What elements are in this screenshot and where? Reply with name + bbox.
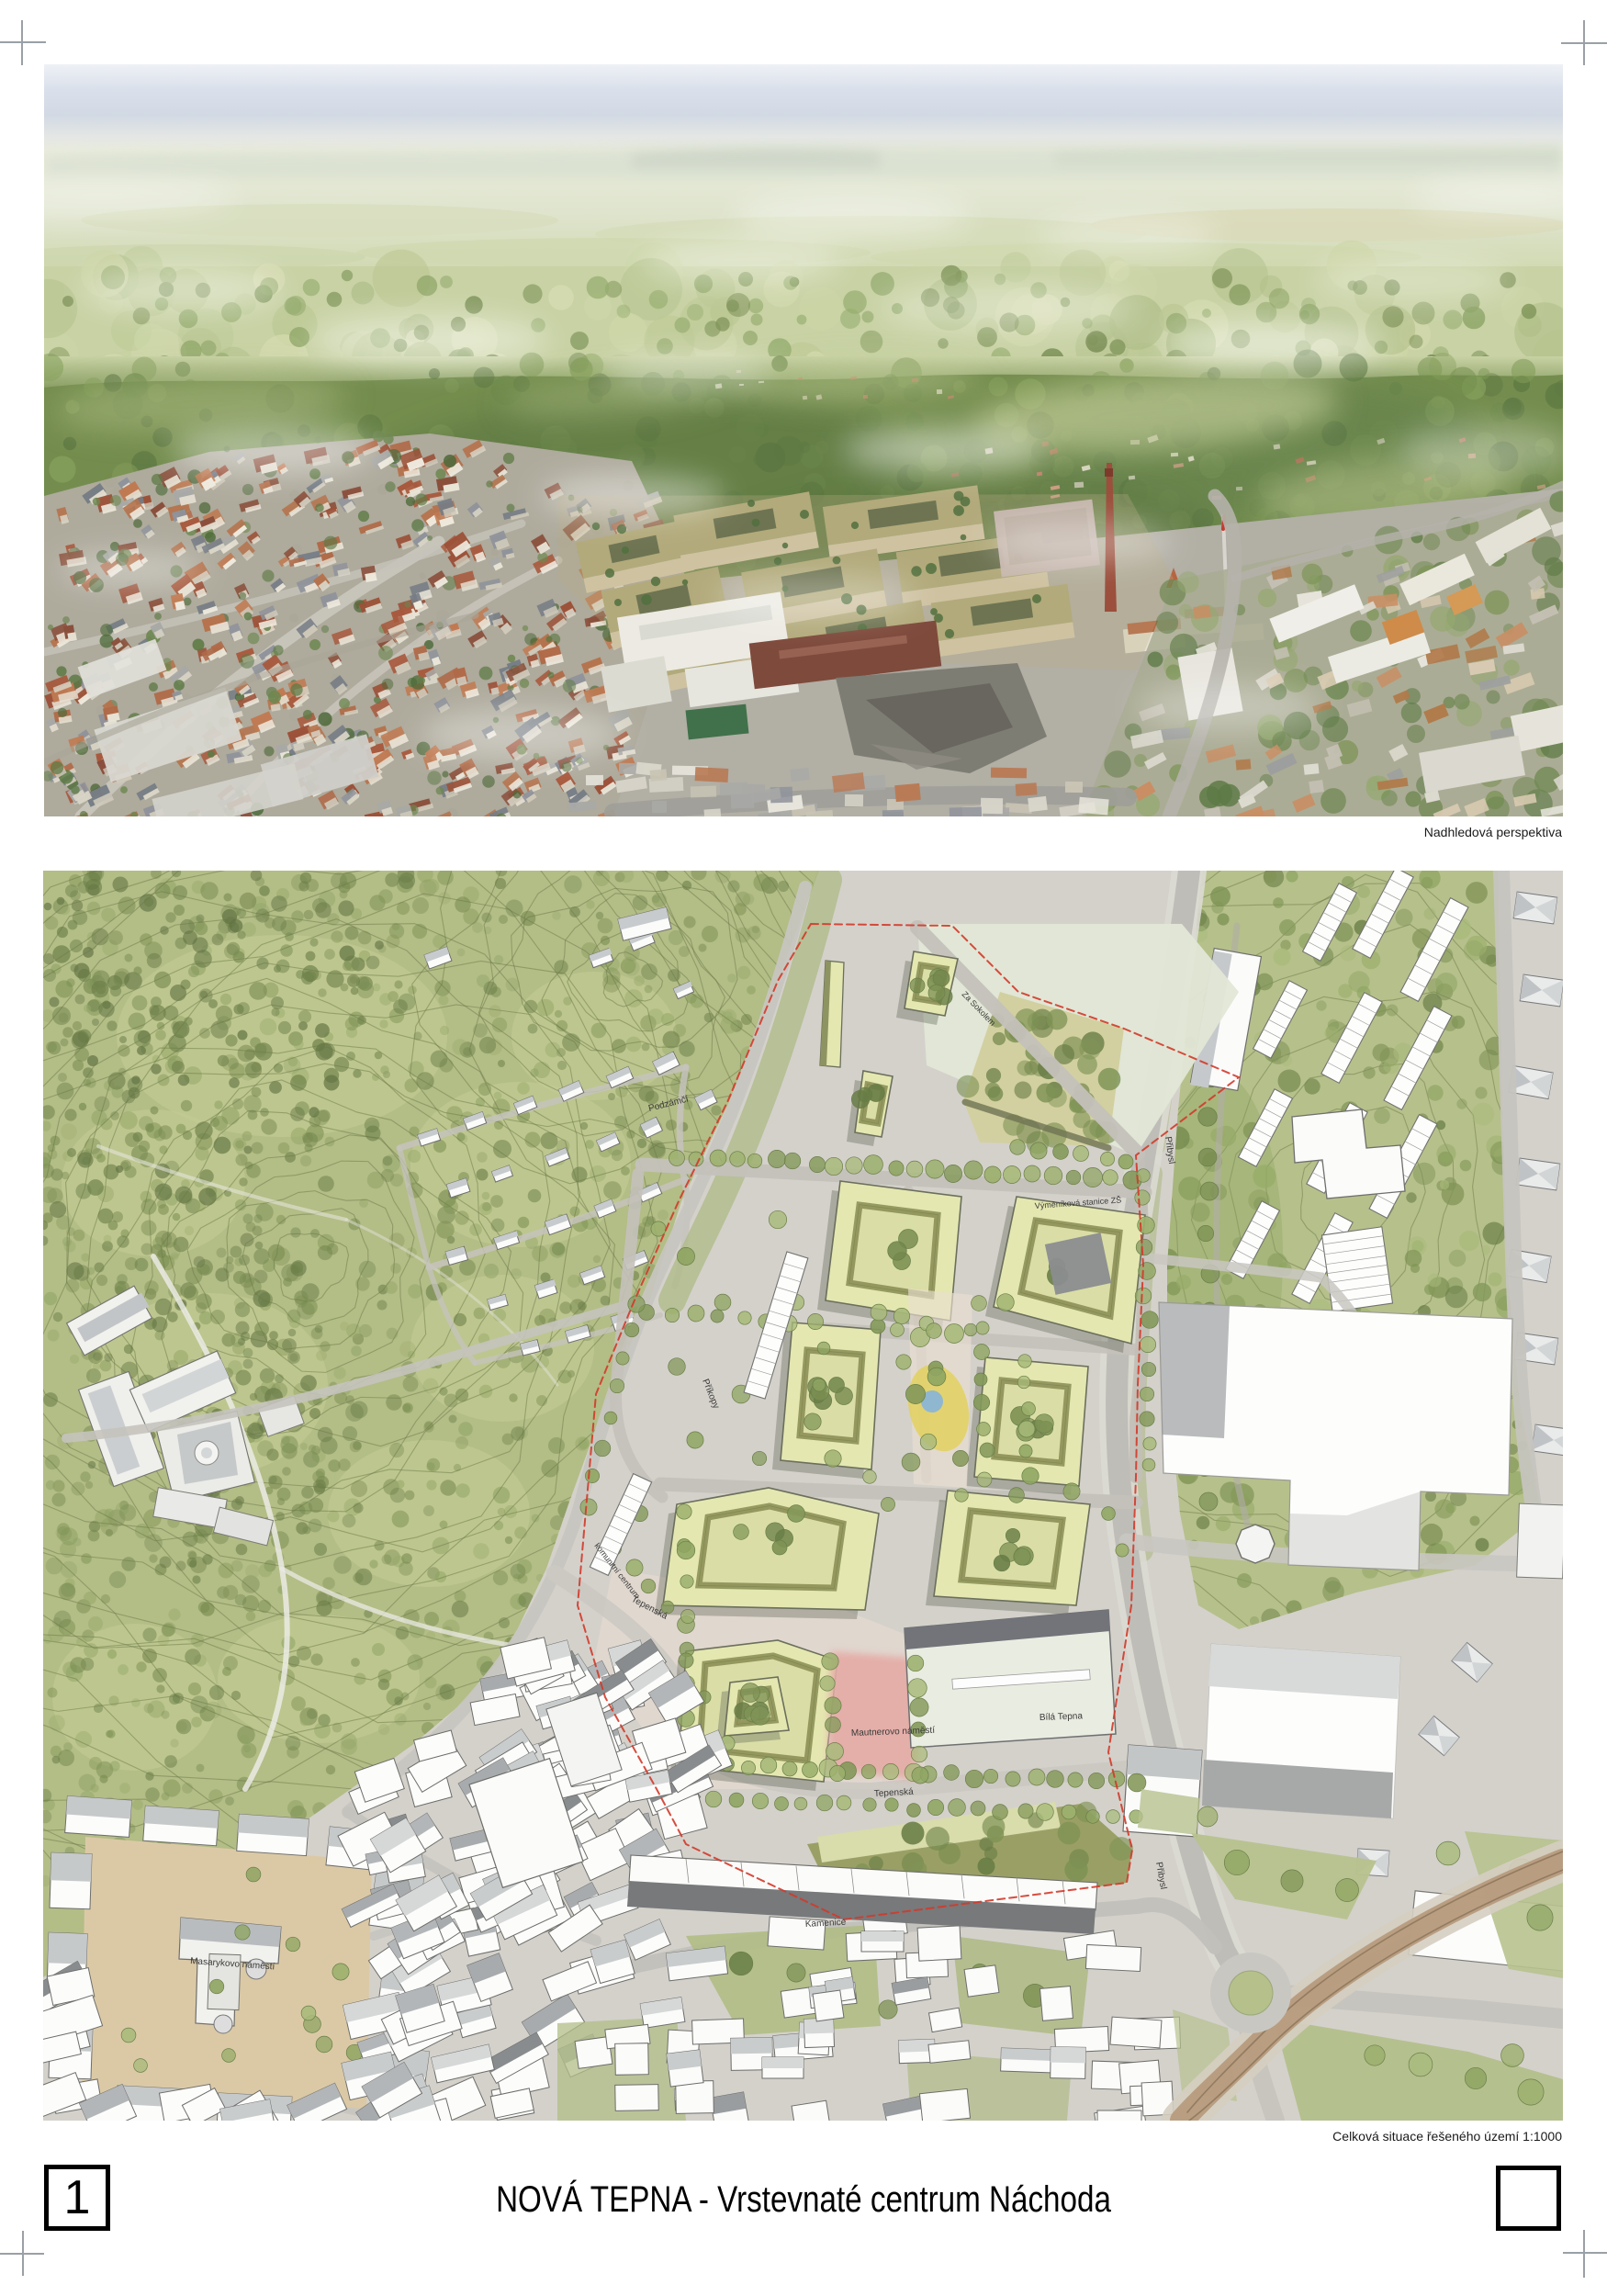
svg-text:Kamenice: Kamenice [805, 1918, 847, 1930]
svg-text:Tepenská: Tepenská [874, 1787, 915, 1799]
svg-text:Bílá Tepna: Bílá Tepna [1039, 1711, 1084, 1723]
